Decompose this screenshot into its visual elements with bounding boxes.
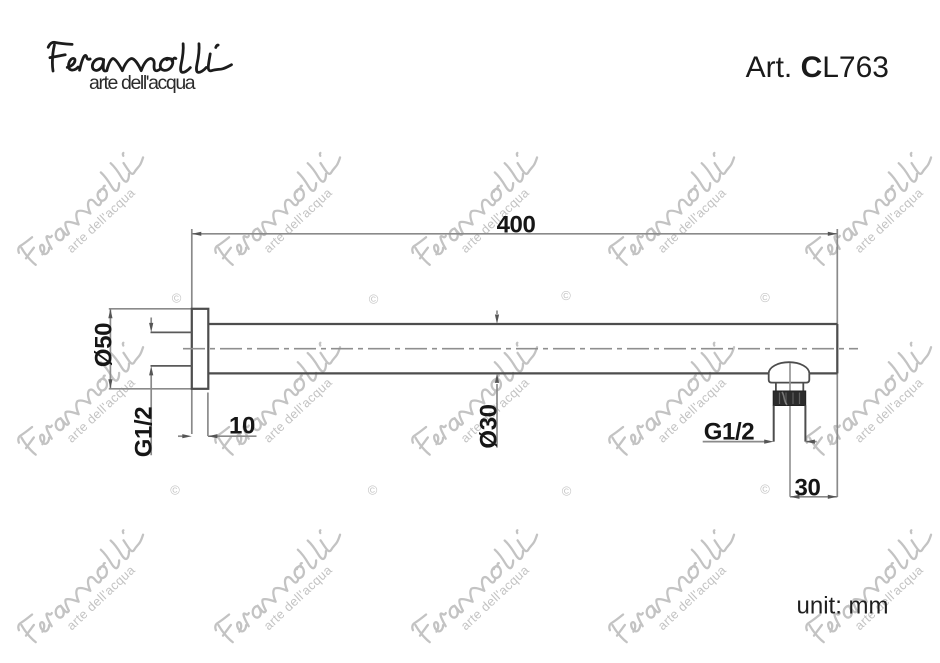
svg-text:unit: mm: unit: mm xyxy=(797,593,889,620)
svg-text:©: © xyxy=(170,483,180,498)
svg-text:30: 30 xyxy=(795,475,821,502)
svg-text:©: © xyxy=(760,290,770,305)
svg-text:10: 10 xyxy=(229,413,255,440)
svg-text:©: © xyxy=(368,483,378,498)
svg-text:Ø50: Ø50 xyxy=(91,323,118,367)
svg-text:G1/2: G1/2 xyxy=(131,407,158,457)
svg-text:©: © xyxy=(760,482,770,497)
svg-text:arte dell'acqua: arte dell'acqua xyxy=(89,72,196,94)
svg-text:Ø30: Ø30 xyxy=(476,404,503,448)
svg-text:©: © xyxy=(172,291,182,306)
svg-text:©: © xyxy=(562,484,572,499)
svg-text:Art. CL763: Art. CL763 xyxy=(746,51,889,84)
svg-text:400: 400 xyxy=(497,212,536,239)
svg-text:©: © xyxy=(561,288,571,303)
svg-text:©: © xyxy=(369,292,379,307)
svg-text:G1/2: G1/2 xyxy=(704,418,754,445)
